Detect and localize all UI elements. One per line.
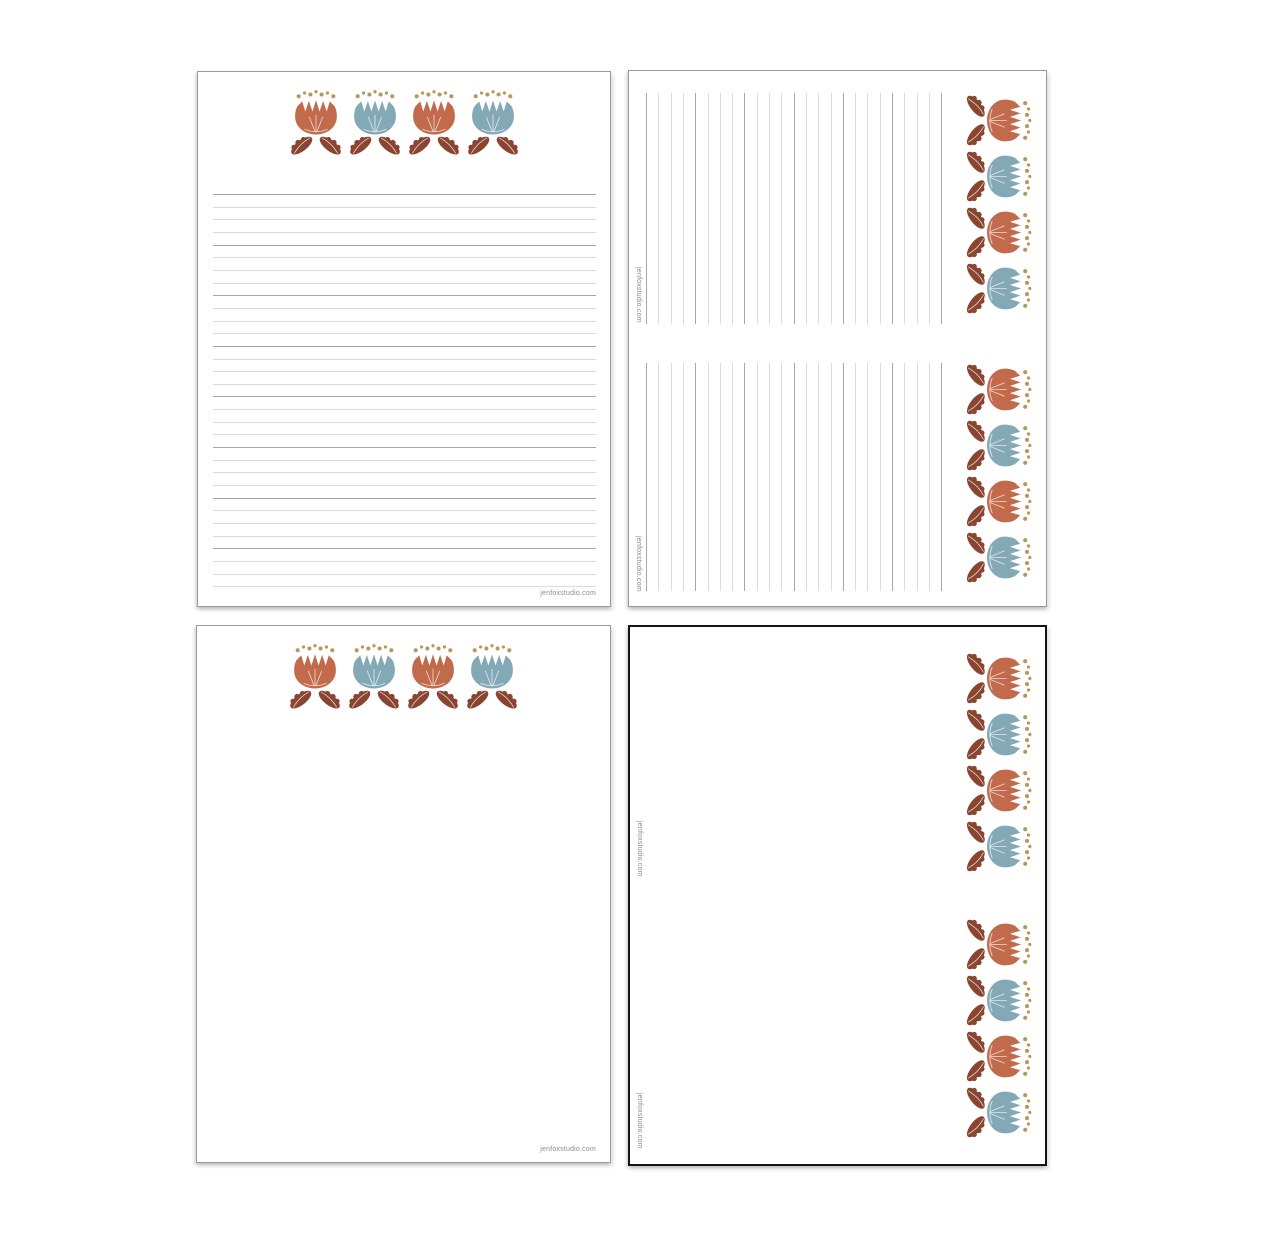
orange-tulip-flower-icon <box>962 1029 1036 1085</box>
half-sheet-top: jenfoxstudio.com <box>630 627 1045 895</box>
ruled-line <box>867 363 868 591</box>
footer-url-rotated: jenfoxstudio.com <box>635 821 644 877</box>
blue-tulip-flower-icon <box>346 640 402 713</box>
orange-tulip-flower-icon <box>962 205 1036 261</box>
orange-tulip-flower-icon <box>962 474 1036 530</box>
flower-border-top <box>198 86 610 159</box>
ruled-line <box>757 93 758 324</box>
blue-tulip-flower-icon <box>465 86 521 159</box>
ruled-line <box>806 93 807 324</box>
footer-url: jenfoxstudio.com <box>540 1145 596 1154</box>
page-lined-note-portrait: jenfoxstudio.com <box>197 71 611 607</box>
flower-border-right <box>962 362 1036 586</box>
ruled-line <box>794 93 795 324</box>
ruled-lines-horizontal <box>213 194 596 594</box>
ruled-line <box>695 363 696 591</box>
blue-tulip-flower-icon <box>347 86 403 159</box>
ruled-line <box>213 359 596 360</box>
stationery-pages-preview: jenfoxstudio.com <box>0 0 1264 1238</box>
ruled-line <box>213 270 596 271</box>
ruled-line <box>213 333 596 334</box>
footer-url: jenfoxstudio.com <box>540 589 596 598</box>
ruled-line <box>892 363 893 591</box>
ruled-line <box>843 93 844 324</box>
ruled-line <box>769 93 770 324</box>
ruled-line <box>213 371 596 372</box>
ruled-line <box>213 536 596 537</box>
ruled-line <box>818 93 819 324</box>
blue-tulip-flower-icon <box>962 530 1036 586</box>
ruled-line <box>213 384 596 385</box>
ruled-line <box>831 363 832 591</box>
ruled-line <box>794 363 795 591</box>
ruled-line <box>213 472 596 473</box>
page-blank-half-sheets: jenfoxstudio.com <box>628 625 1047 1166</box>
ruled-line <box>213 257 596 258</box>
flower-border-right <box>962 917 1036 1141</box>
ruled-line <box>213 434 596 435</box>
ruled-line <box>213 510 596 511</box>
ruled-line <box>213 498 596 499</box>
blue-tulip-flower-icon <box>962 149 1036 205</box>
ruled-line <box>213 321 596 322</box>
ruled-line <box>213 460 596 461</box>
blue-tulip-flower-icon <box>962 418 1036 474</box>
ruled-line <box>213 283 596 284</box>
ruled-line <box>781 93 782 324</box>
flower-border-right <box>962 93 1036 317</box>
ruled-line <box>213 396 596 397</box>
blue-tulip-flower-icon <box>464 640 520 713</box>
footer-url-rotated: jenfoxstudio.com <box>635 1093 644 1149</box>
ruled-line <box>744 363 745 591</box>
ruled-line <box>646 93 647 324</box>
ruled-line <box>213 219 596 220</box>
ruled-line <box>683 93 684 324</box>
orange-tulip-flower-icon <box>962 362 1036 418</box>
ruled-line <box>929 363 930 591</box>
ruled-line <box>855 363 856 591</box>
ruled-line <box>917 363 918 591</box>
ruled-lines-vertical <box>646 363 942 591</box>
ruled-line <box>929 93 930 324</box>
footer-url-rotated: jenfoxstudio.com <box>634 267 643 323</box>
orange-tulip-flower-icon <box>962 651 1036 707</box>
blue-tulip-flower-icon <box>962 261 1036 317</box>
half-sheet-bottom: jenfoxstudio.com <box>630 895 1045 1164</box>
half-sheet-bottom: jenfoxstudio.com <box>629 339 1046 606</box>
ruled-line <box>213 561 596 562</box>
ruled-line <box>941 93 942 324</box>
ruled-line <box>213 574 596 575</box>
half-sheet-top: jenfoxstudio.com <box>629 71 1046 339</box>
page-blank-note-portrait: jenfoxstudio.com <box>196 625 611 1163</box>
ruled-line <box>757 363 758 591</box>
ruled-line <box>855 93 856 324</box>
ruled-line <box>213 295 596 296</box>
orange-tulip-flower-icon <box>962 93 1036 149</box>
ruled-line <box>213 586 596 587</box>
ruled-line <box>941 363 942 591</box>
blue-tulip-flower-icon <box>962 1085 1036 1141</box>
ruled-line <box>892 93 893 324</box>
ruled-line <box>720 363 721 591</box>
ruled-line <box>213 245 596 246</box>
orange-tulip-flower-icon <box>406 86 462 159</box>
ruled-line <box>818 363 819 591</box>
ruled-line <box>720 93 721 324</box>
ruled-line <box>213 308 596 309</box>
ruled-line <box>781 363 782 591</box>
ruled-line <box>732 93 733 324</box>
ruled-line <box>831 93 832 324</box>
ruled-line <box>695 93 696 324</box>
ruled-line <box>213 422 596 423</box>
footer-url-rotated: jenfoxstudio.com <box>634 536 643 592</box>
ruled-line <box>708 93 709 324</box>
ruled-line <box>904 93 905 324</box>
flower-border-right <box>962 651 1036 875</box>
ruled-line <box>744 93 745 324</box>
ruled-line <box>658 93 659 324</box>
ruled-line <box>213 346 596 347</box>
orange-tulip-flower-icon <box>287 640 343 713</box>
ruled-line <box>646 363 647 591</box>
ruled-line <box>213 548 596 549</box>
ruled-line <box>658 363 659 591</box>
ruled-line <box>904 363 905 591</box>
ruled-line <box>213 447 596 448</box>
ruled-line <box>213 485 596 486</box>
ruled-line <box>213 523 596 524</box>
ruled-line <box>917 93 918 324</box>
orange-tulip-flower-icon <box>288 86 344 159</box>
ruled-line <box>683 363 684 591</box>
ruled-lines-vertical <box>646 93 942 324</box>
ruled-line <box>880 363 881 591</box>
ruled-line <box>213 409 596 410</box>
ruled-line <box>708 363 709 591</box>
ruled-line <box>880 93 881 324</box>
flower-border-top <box>197 640 610 713</box>
ruled-line <box>732 363 733 591</box>
ruled-line <box>671 93 672 324</box>
blue-tulip-flower-icon <box>962 973 1036 1029</box>
blue-tulip-flower-icon <box>962 819 1036 875</box>
page-lined-half-sheets: jenfoxstudio.com <box>628 70 1047 607</box>
orange-tulip-flower-icon <box>962 763 1036 819</box>
ruled-line <box>843 363 844 591</box>
ruled-line <box>769 363 770 591</box>
orange-tulip-flower-icon <box>405 640 461 713</box>
ruled-line <box>806 363 807 591</box>
ruled-line <box>213 194 596 195</box>
ruled-line <box>213 232 596 233</box>
orange-tulip-flower-icon <box>962 917 1036 973</box>
blue-tulip-flower-icon <box>962 707 1036 763</box>
ruled-line <box>671 363 672 591</box>
ruled-line <box>867 93 868 324</box>
ruled-line <box>213 207 596 208</box>
